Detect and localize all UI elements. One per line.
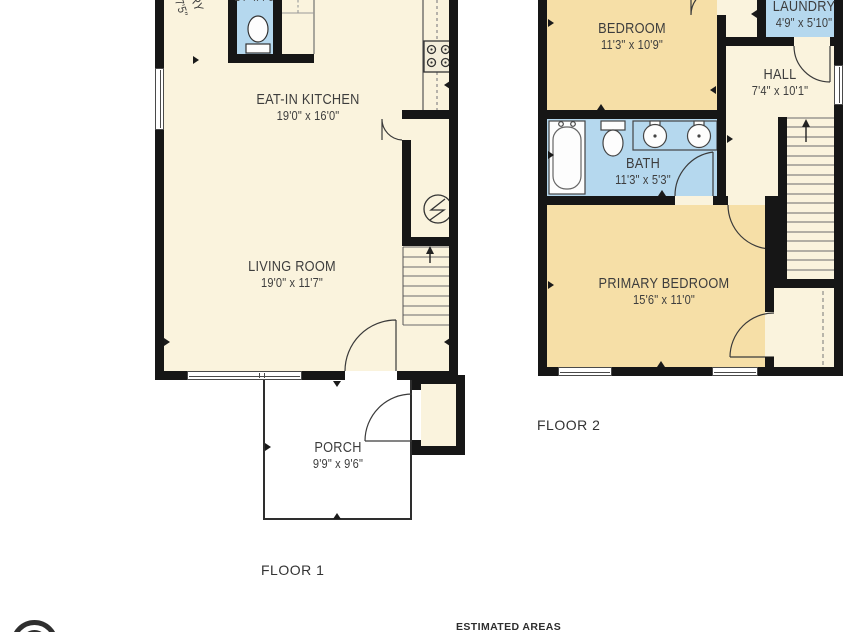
window [712,367,758,376]
front-door [345,320,396,371]
floorplan-canvas: EAT-IN KITCHEN 19'0" x 16'0" LIVING ROOM… [0,0,843,632]
closet-floor1 [282,0,314,54]
room-label-porch: PORCH 9'9" x 9'6" [313,439,363,472]
wall [713,196,728,205]
wall [402,140,411,246]
wall [538,110,726,119]
wall [774,205,787,279]
estimated-areas-label: ESTIMATED AREAS [456,621,561,632]
wall [456,375,465,455]
room-label-eat-in-kitchen: EAT-IN KITCHEN 19'0" x 16'0" [256,91,359,124]
floor1-title: FLOOR 1 [261,562,324,578]
toilet-icon-floor2 [601,121,625,156]
window [187,371,302,380]
room-label-bedroom: BEDROOM 11'3" x 10'9" [598,20,666,53]
wall [412,440,421,446]
wall [765,279,843,288]
wall [834,0,843,376]
stairs-floor1 [403,246,449,325]
room-label-hall: HALL 7'4" x 10'1" [752,66,808,99]
wall [273,0,282,54]
wall [402,237,458,246]
wall [449,0,458,380]
utility-door [382,119,402,140]
wall [538,0,547,376]
stairs-up-arrow-floor2 [802,119,810,127]
toilet-icon-floor1 [246,16,270,53]
wall [717,37,766,46]
vanity-sinks-icon [633,121,717,150]
wall [830,37,843,46]
room-label-laundry: LAUNDRY 4'9" x 5'10" [773,0,835,31]
room-label-half-bath: 2'7" x 7'5" [235,0,278,5]
bedroom-door [691,0,717,15]
wall [402,110,458,119]
water-heater-icon [424,195,452,223]
wall [538,196,675,205]
wall [765,196,774,312]
primary-closet-door [730,313,774,357]
window [834,65,843,105]
bathtub-icon [549,121,585,194]
storage-door [365,394,412,441]
wall [228,54,314,63]
room-label-primary-bedroom: PRIMARY BEDROOM 15'6" x 11'0" [599,275,730,308]
window [558,367,612,376]
room-label-living-room: LIVING ROOM 19'0" x 11'7" [248,258,336,291]
wall [155,0,164,380]
wall [765,357,774,367]
floor2-title: FLOOR 2 [537,417,600,433]
wall [778,117,787,205]
bath-door [675,152,713,196]
wall [717,119,726,205]
wall [717,15,726,110]
wall [757,0,766,37]
window [155,68,164,130]
stairs-floor2 [787,118,834,270]
room-label-bath: BATH 11'3" x 5'3" [615,155,671,188]
wall [412,384,421,390]
